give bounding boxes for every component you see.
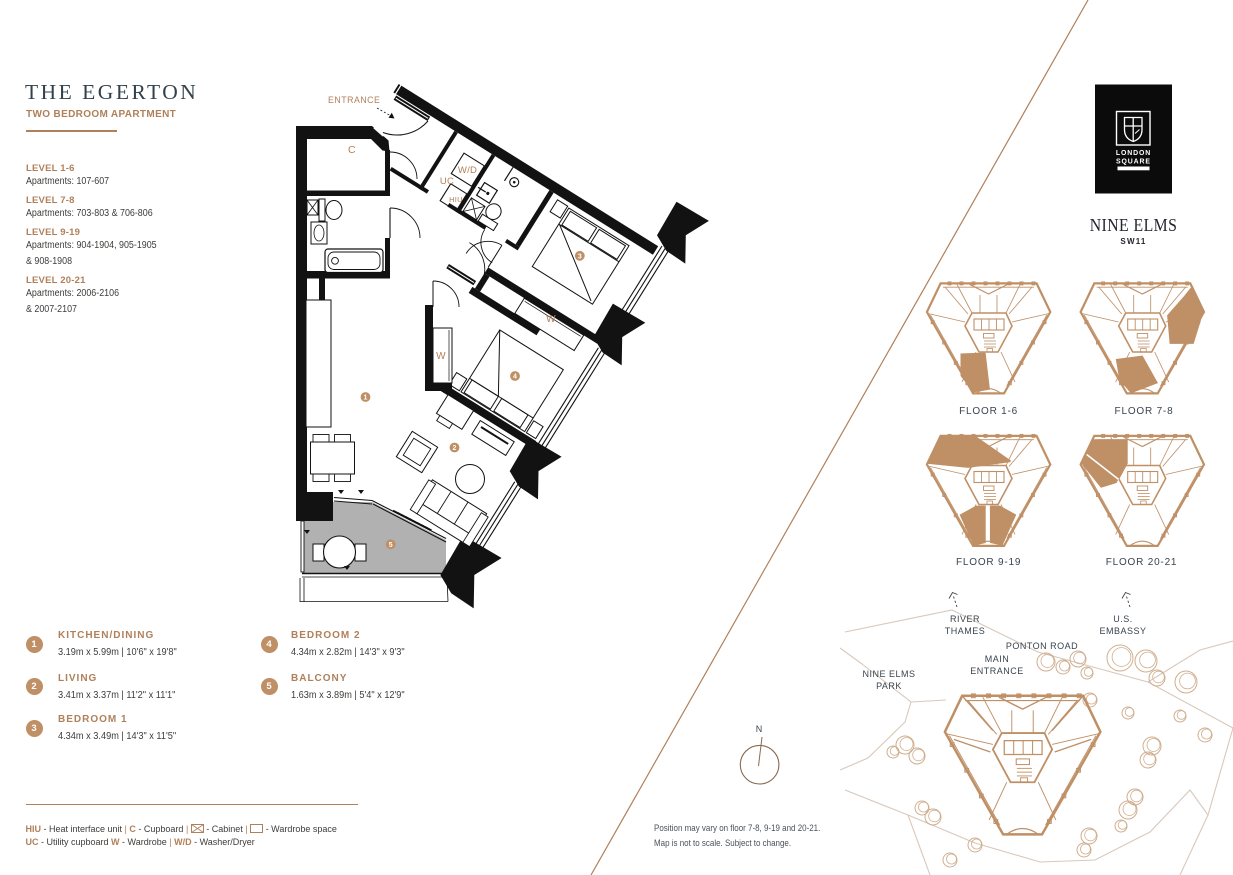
svg-text:W: W (436, 351, 446, 362)
svg-text:LONDON: LONDON (1116, 150, 1151, 157)
svg-text:ENTRANCE: ENTRANCE (328, 95, 380, 105)
svg-text:5: 5 (389, 542, 393, 549)
svg-text:W/D: W/D (458, 165, 477, 176)
svg-text:2: 2 (453, 445, 457, 452)
svg-text:HIU: HIU (449, 195, 463, 204)
svg-text:W: W (546, 314, 556, 325)
svg-text:1: 1 (364, 395, 368, 402)
svg-text:SQUARE: SQUARE (1116, 159, 1151, 166)
svg-text:4: 4 (513, 374, 517, 381)
svg-text:C: C (348, 144, 356, 156)
svg-text:3: 3 (578, 253, 582, 260)
svg-text:UC: UC (440, 176, 454, 187)
